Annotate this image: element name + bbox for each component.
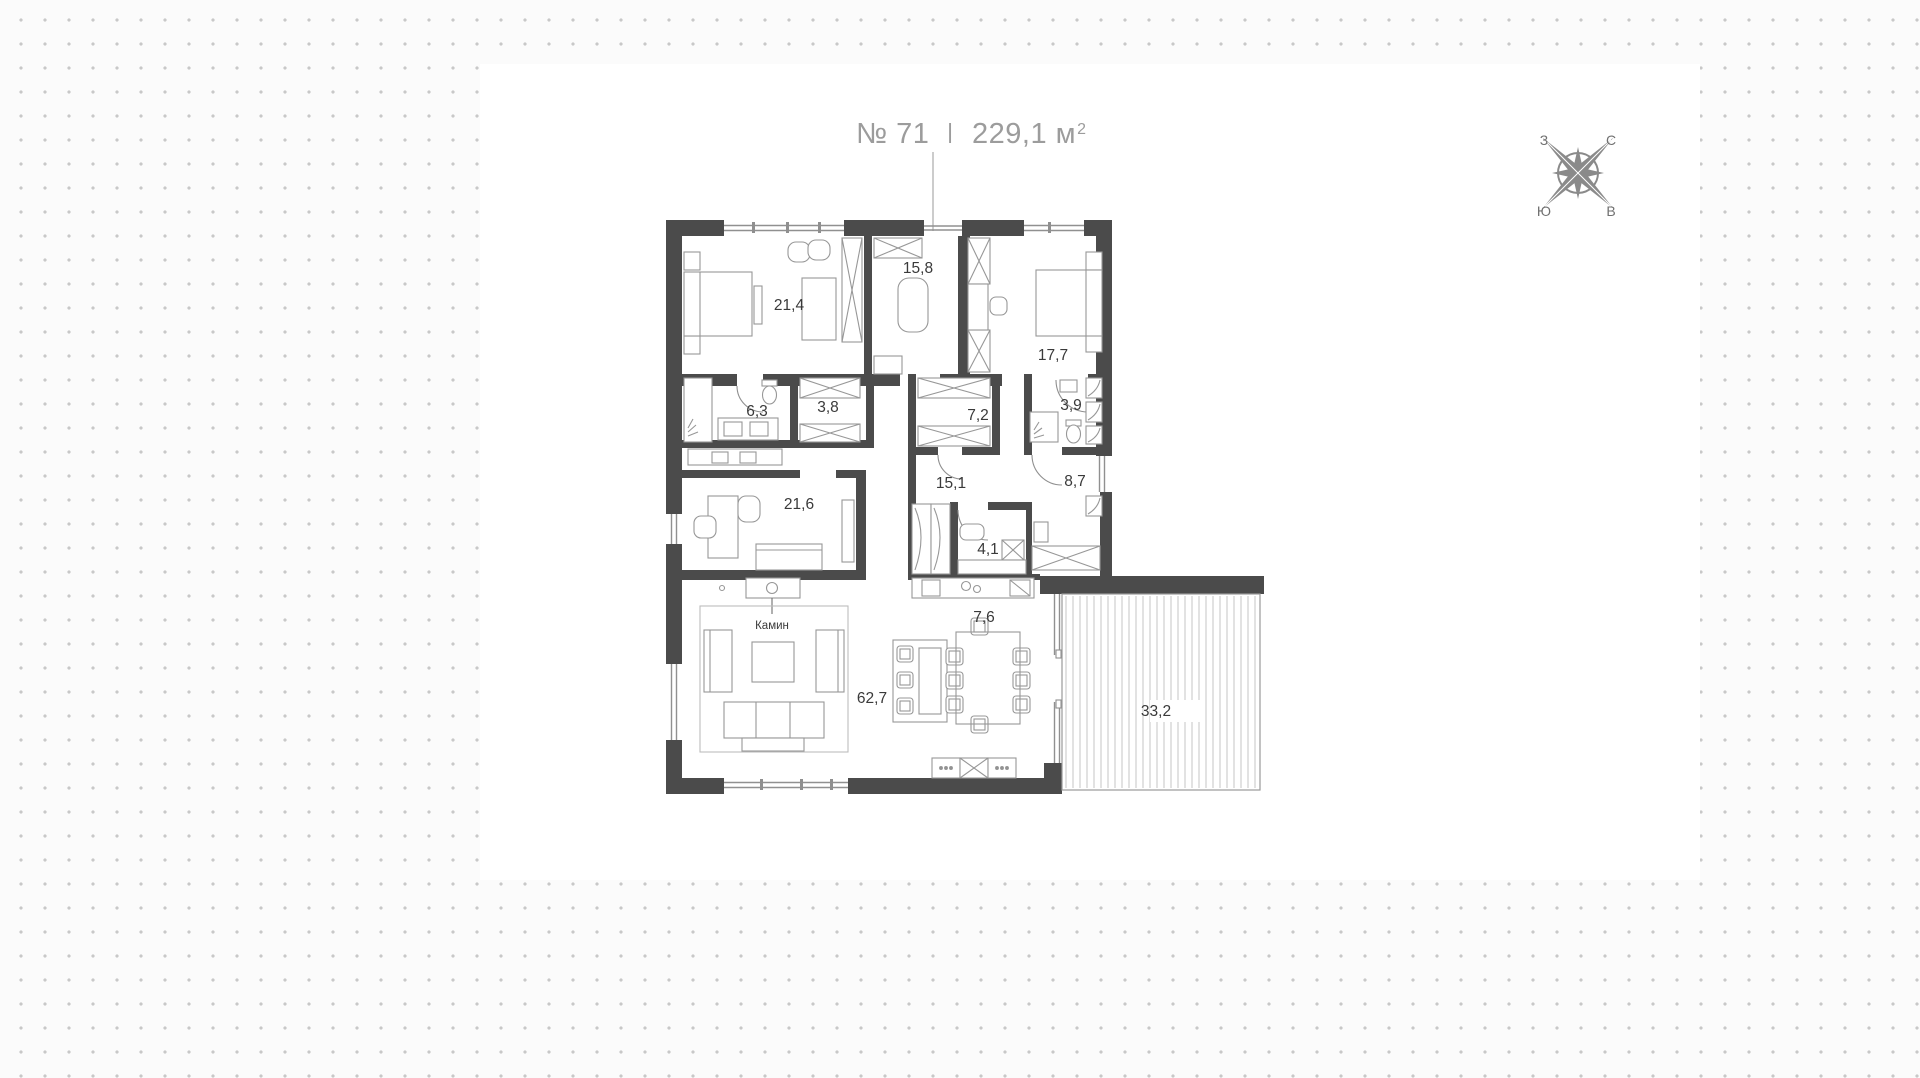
room-area-wardrobe-2: 7,2: [967, 407, 989, 424]
fireplace-label: Камин: [755, 620, 789, 632]
room-area-shower-room: 3,9: [1060, 397, 1082, 414]
bench: [754, 286, 762, 324]
sink: [750, 422, 768, 436]
room-area-bathroom: 6,3: [746, 403, 768, 420]
basin: [960, 524, 984, 540]
sofa: [724, 702, 824, 738]
sofa: [756, 544, 822, 570]
sink: [724, 422, 742, 436]
cabinet: [958, 560, 1026, 574]
room-area-terrace: 33,2: [1141, 703, 1171, 720]
toilet-tank: [762, 380, 777, 386]
console: [688, 449, 782, 465]
room-area-laundry: 4,1: [977, 541, 999, 558]
page: № 71 I 229,1 м2: [0, 0, 1920, 1078]
chair: [788, 242, 810, 262]
room-area-corridor: 8,7: [1064, 473, 1086, 490]
room-area-living-room: 62,7: [857, 690, 887, 707]
nightstand: [1086, 252, 1102, 270]
room-area-kitchen: 7,6: [973, 609, 995, 626]
bed: [1036, 270, 1102, 336]
toilet: [763, 386, 777, 404]
chair: [808, 240, 830, 260]
compass-south-label: Ю: [1537, 203, 1551, 219]
island-top: [919, 648, 941, 714]
desk: [968, 284, 988, 330]
compass-rose-icon: З С Ю В: [1518, 118, 1638, 230]
bench-seat: [898, 278, 928, 332]
room-area-study: 21,6: [784, 496, 814, 513]
chair: [990, 297, 1007, 315]
nightstand: [684, 252, 700, 270]
low-cabinet: [874, 356, 902, 374]
coffee-table: [752, 642, 794, 682]
armchair: [816, 630, 844, 692]
tv: [842, 500, 854, 562]
wall-light: [720, 586, 725, 591]
compass-west-label: З: [1540, 132, 1548, 148]
compass-north-label: С: [1606, 132, 1616, 148]
bed: [684, 272, 752, 336]
room-area-entry-hall: 15,8: [903, 260, 933, 277]
furniture: [684, 238, 1102, 778]
chair: [694, 516, 716, 538]
room-area-bedroom-1: 21,4: [774, 297, 805, 314]
armchair: [704, 630, 732, 692]
sink: [1060, 380, 1077, 392]
sofa-console: [742, 738, 804, 751]
chair: [738, 496, 760, 522]
room-area-wardrobe-1: 3,8: [817, 399, 839, 416]
appliance: [1034, 522, 1048, 542]
room-area-bedroom-2: 17,7: [1038, 347, 1068, 364]
dining-table: [956, 632, 1020, 724]
compass-east-label: В: [1606, 203, 1615, 219]
fireplace-flue: [767, 583, 778, 594]
desk: [802, 278, 836, 340]
toilet: [1067, 425, 1081, 443]
kitchen-module: [922, 580, 940, 596]
nightstand: [684, 336, 700, 354]
room-area-hall: 15,1: [936, 475, 966, 492]
terrace-deck: [1062, 594, 1260, 790]
nightstand: [1086, 334, 1102, 352]
